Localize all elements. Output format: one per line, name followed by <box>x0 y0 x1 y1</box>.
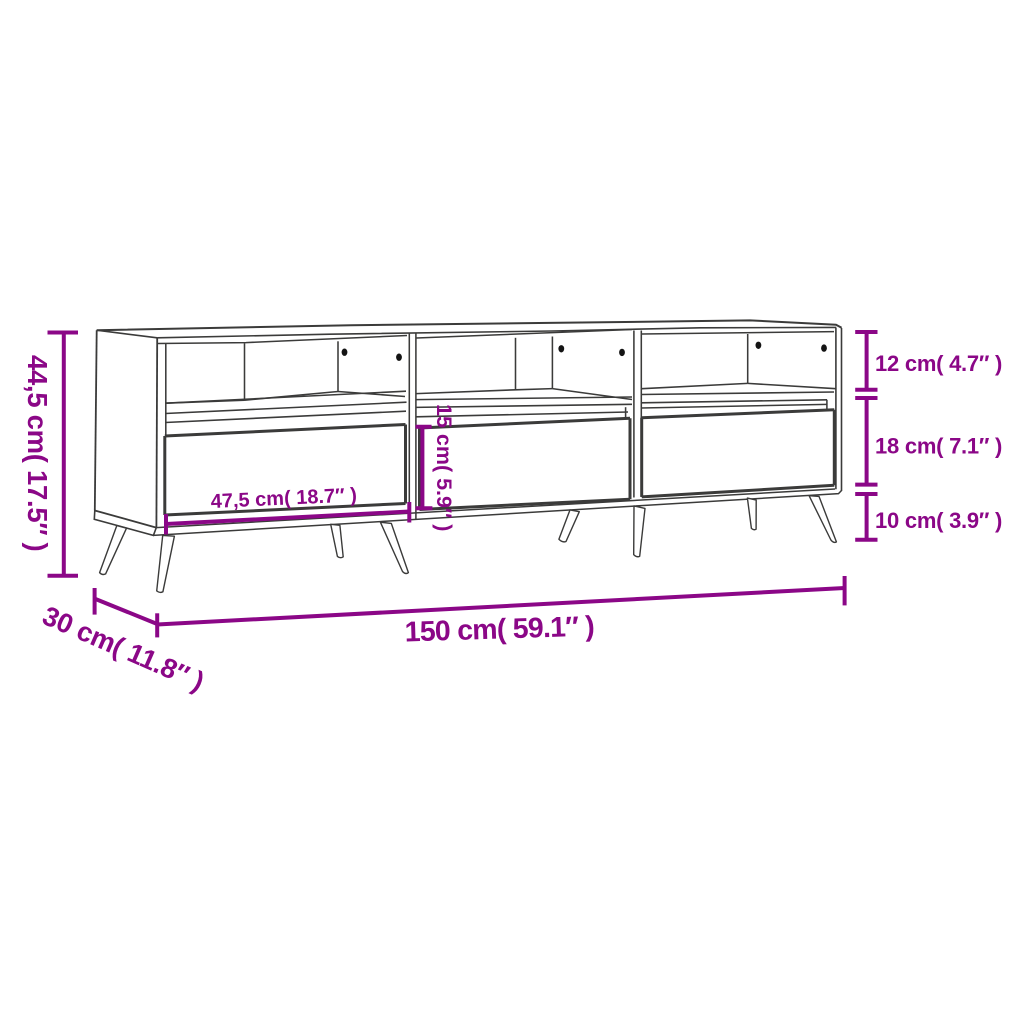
svg-text:10 cm( 3.9″ ): 10 cm( 3.9″ ) <box>875 508 1002 533</box>
svg-text:12 cm( 4.7″ ): 12 cm( 4.7″ ) <box>875 351 1002 376</box>
svg-text:47,5 cm( 18.7″ ): 47,5 cm( 18.7″ ) <box>210 484 357 513</box>
svg-text:15 cm( 5.9″ ): 15 cm( 5.9″ ) <box>432 404 456 531</box>
svg-text:150 cm( 59.1″ ): 150 cm( 59.1″ ) <box>404 611 595 649</box>
svg-text:18 cm( 7.1″ ): 18 cm( 7.1″ ) <box>875 434 1002 459</box>
svg-text:44,5 cm( 17.5″ ): 44,5 cm( 17.5″ ) <box>22 355 53 551</box>
svg-text:30 cm( 11.8″ ): 30 cm( 11.8″ ) <box>38 600 209 697</box>
